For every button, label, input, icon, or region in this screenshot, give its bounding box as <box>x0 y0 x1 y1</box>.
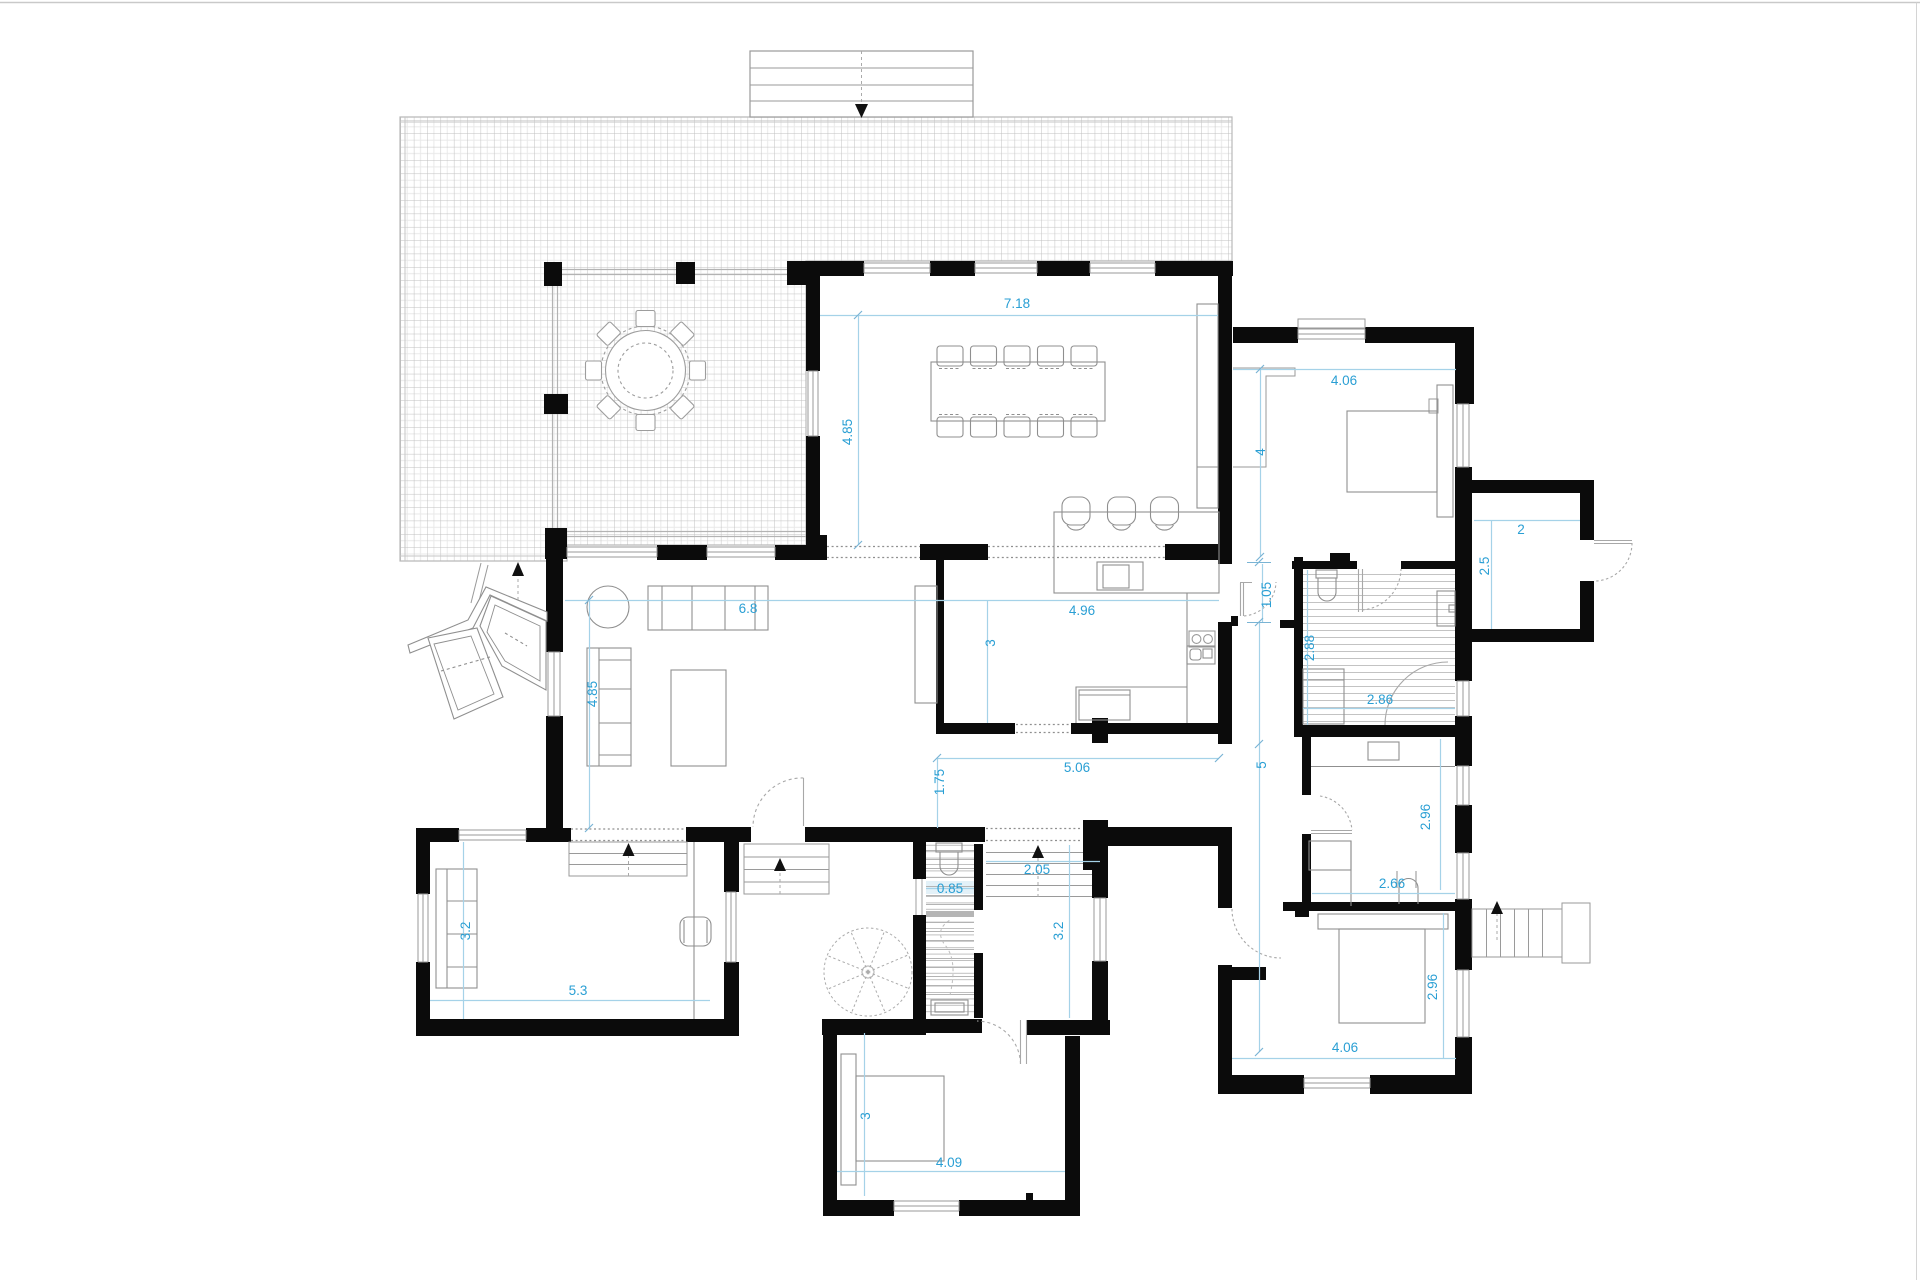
svg-text:2.86: 2.86 <box>1367 692 1393 707</box>
svg-text:4.09: 4.09 <box>936 1155 962 1170</box>
svg-text:4.06: 4.06 <box>1331 373 1357 388</box>
svg-text:3.2: 3.2 <box>458 922 473 941</box>
svg-text:3.2: 3.2 <box>1051 922 1066 941</box>
svg-text:1.75: 1.75 <box>932 769 947 795</box>
svg-text:7.18: 7.18 <box>1004 296 1030 311</box>
svg-text:1.05: 1.05 <box>1259 582 1274 608</box>
svg-text:2.05: 2.05 <box>1024 862 1050 877</box>
svg-text:2: 2 <box>1517 522 1525 537</box>
svg-text:4.96: 4.96 <box>1069 603 1095 618</box>
svg-text:4.06: 4.06 <box>1332 1040 1358 1055</box>
svg-text:5.3: 5.3 <box>569 983 588 998</box>
svg-text:5.06: 5.06 <box>1064 760 1090 775</box>
svg-text:4: 4 <box>1253 448 1268 456</box>
svg-text:4.85: 4.85 <box>585 681 600 707</box>
svg-text:2.88: 2.88 <box>1302 635 1317 661</box>
svg-text:5: 5 <box>1254 761 1269 769</box>
svg-text:3: 3 <box>858 1112 873 1120</box>
svg-text:0.85: 0.85 <box>937 881 963 896</box>
svg-text:4.85: 4.85 <box>840 419 855 445</box>
svg-text:2.96: 2.96 <box>1425 974 1440 1000</box>
svg-text:2.96: 2.96 <box>1418 804 1433 830</box>
svg-text:6.8: 6.8 <box>739 601 758 616</box>
svg-text:2.5: 2.5 <box>1477 557 1492 576</box>
svg-text:3: 3 <box>983 639 998 647</box>
svg-text:2.66: 2.66 <box>1379 876 1405 891</box>
